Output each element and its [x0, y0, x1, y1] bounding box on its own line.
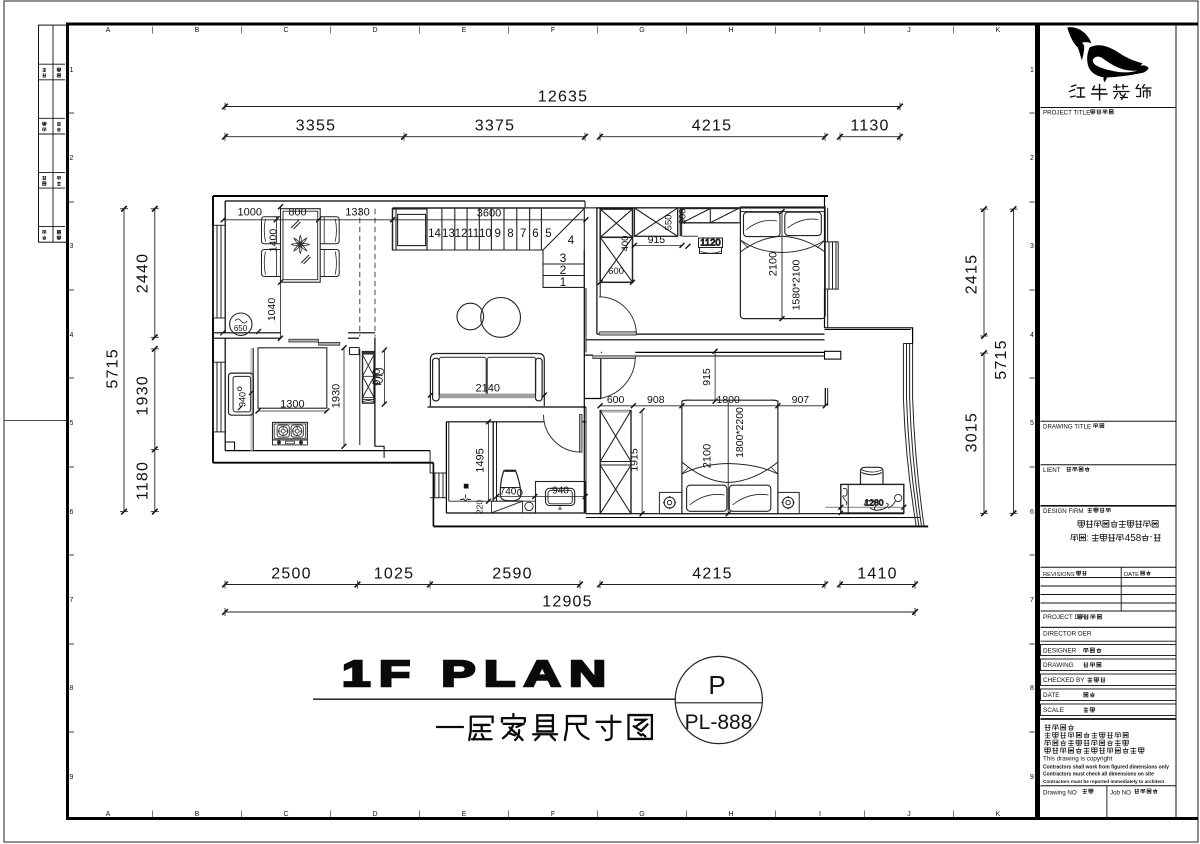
svg-text:2140: 2140: [476, 383, 500, 395]
svg-text:|: |: [241, 811, 243, 818]
svg-text:A: A: [106, 811, 111, 818]
svg-text:D: D: [372, 811, 377, 818]
svg-text:2500: 2500: [271, 566, 311, 583]
svg-text:400: 400: [620, 236, 631, 252]
svg-text:1130: 1130: [850, 118, 889, 135]
svg-text:6: 6: [70, 509, 74, 516]
svg-text:DRAWING TITLE: DRAWING TITLE: [1043, 423, 1091, 430]
svg-text:740: 740: [500, 487, 517, 498]
svg-text:2: 2: [1030, 155, 1034, 162]
svg-text:8: 8: [507, 228, 513, 240]
svg-text:P: P: [708, 670, 725, 700]
svg-text:7: 7: [70, 597, 74, 604]
svg-text:|: |: [686, 27, 688, 34]
svg-text:1580*2100: 1580*2100: [791, 259, 803, 310]
svg-text:2: 2: [70, 155, 74, 162]
svg-text:1120: 1120: [700, 237, 720, 248]
svg-text:This drawing is copyright: This drawing is copyright: [1043, 755, 1113, 762]
svg-text:12635: 12635: [538, 89, 589, 106]
svg-text:1: 1: [70, 67, 74, 74]
svg-text:7: 7: [520, 228, 526, 240]
svg-text:C: C: [283, 811, 288, 818]
svg-text:DIRECTOR DER: DIRECTOR DER: [1043, 631, 1092, 638]
svg-text:907: 907: [792, 394, 810, 406]
svg-text:|: |: [775, 27, 777, 34]
svg-text:8: 8: [1030, 685, 1034, 692]
svg-text:940: 940: [552, 486, 569, 497]
svg-text:9: 9: [70, 774, 74, 781]
svg-text:G: G: [639, 27, 644, 34]
svg-text:1F PLAN: 1F PLAN: [342, 654, 615, 694]
svg-text:|: |: [686, 811, 688, 818]
svg-text:12905: 12905: [542, 594, 593, 611]
svg-text:1330: 1330: [345, 207, 369, 219]
svg-text:300: 300: [678, 209, 689, 225]
svg-text:Job NO: Job NO: [1110, 789, 1131, 796]
svg-text:E: E: [462, 811, 467, 818]
svg-text:650: 650: [234, 324, 248, 333]
svg-text:E: E: [462, 27, 467, 34]
svg-text:600: 600: [607, 394, 625, 406]
svg-text:3355: 3355: [296, 118, 336, 135]
svg-text:J: J: [907, 27, 911, 34]
svg-text:|: |: [864, 27, 866, 34]
svg-text:Contractors must check all dim: Contractors must check all dimensions on…: [1043, 772, 1154, 778]
svg-text:2415: 2415: [964, 254, 981, 294]
svg-text:F: F: [551, 811, 555, 818]
svg-text:1800*2200: 1800*2200: [734, 407, 746, 458]
svg-text:220: 220: [475, 500, 485, 514]
svg-text:|: |: [953, 811, 955, 818]
svg-text:I: I: [819, 811, 821, 818]
svg-text:1930: 1930: [135, 375, 152, 415]
svg-text:1915: 1915: [629, 448, 641, 472]
svg-text:LIENT: LIENT: [1043, 467, 1061, 474]
svg-text:5: 5: [1030, 420, 1034, 427]
svg-text:3: 3: [70, 243, 74, 250]
svg-text::: :: [1087, 533, 1090, 543]
svg-text:|: |: [597, 27, 599, 34]
svg-text:915: 915: [648, 234, 666, 246]
svg-text:K: K: [996, 27, 1001, 34]
svg-text:2440: 2440: [135, 253, 152, 293]
svg-text:2100: 2100: [702, 444, 714, 468]
svg-text:11: 11: [467, 228, 479, 240]
svg-text:DESIGNER: DESIGNER: [1043, 648, 1077, 655]
svg-text:6: 6: [532, 228, 538, 240]
svg-text:A: A: [106, 27, 111, 34]
svg-text:H: H: [728, 811, 733, 818]
svg-text:PL-888: PL-888: [685, 711, 753, 734]
svg-text:|: |: [508, 811, 510, 818]
svg-text:1300: 1300: [280, 399, 304, 411]
svg-text:B: B: [195, 27, 200, 34]
svg-text:|: |: [330, 27, 332, 34]
svg-text:600: 600: [608, 266, 624, 277]
svg-text:|: |: [419, 27, 421, 34]
svg-text:9: 9: [494, 228, 500, 240]
svg-text:|: |: [597, 811, 599, 818]
svg-text:H: H: [728, 27, 733, 34]
svg-text:1495: 1495: [475, 448, 487, 472]
svg-text:8: 8: [70, 685, 74, 692]
svg-text:-: -: [1150, 532, 1153, 542]
svg-text:3600: 3600: [477, 208, 501, 220]
svg-text:6: 6: [1030, 509, 1034, 516]
svg-text:|: |: [419, 811, 421, 818]
svg-text:4: 4: [568, 235, 575, 247]
svg-text:|: |: [152, 27, 154, 34]
svg-text:F: F: [551, 27, 555, 34]
svg-text:9: 9: [1030, 774, 1034, 781]
svg-text:5: 5: [70, 420, 74, 427]
svg-text:12: 12: [455, 228, 468, 240]
svg-text:DATE: DATE: [1124, 572, 1139, 578]
svg-text:550: 550: [664, 215, 675, 231]
svg-text:5715: 5715: [993, 339, 1010, 379]
svg-text:|: |: [953, 27, 955, 34]
svg-text:2100: 2100: [768, 252, 780, 276]
svg-text:7: 7: [1030, 597, 1034, 604]
svg-text:5: 5: [545, 228, 551, 240]
svg-text:1025: 1025: [374, 566, 414, 583]
svg-text:5715: 5715: [105, 348, 122, 388]
svg-text:DESIGN FIRM: DESIGN FIRM: [1043, 508, 1084, 515]
svg-text:REVISIONS: REVISIONS: [1043, 572, 1075, 578]
svg-text:1400: 1400: [268, 229, 280, 253]
svg-text:Contractors shall work from fi: Contractors shall work from figured dime…: [1043, 764, 1169, 770]
svg-text:1: 1: [1030, 67, 1034, 74]
svg-text:DATE: DATE: [1043, 692, 1060, 699]
svg-text:10: 10: [479, 228, 492, 240]
svg-text:PROJECT TITLE: PROJECT TITLE: [1043, 110, 1090, 117]
svg-text:I: I: [819, 27, 821, 34]
svg-text:4215: 4215: [692, 118, 732, 135]
svg-text:1000: 1000: [238, 207, 262, 219]
svg-text:|: |: [241, 27, 243, 34]
svg-text:J: J: [907, 811, 911, 818]
svg-text:K: K: [996, 811, 1001, 818]
svg-text:1280: 1280: [865, 498, 884, 508]
svg-text:1: 1: [560, 275, 567, 289]
svg-text:915: 915: [701, 368, 713, 386]
svg-text:SCALE: SCALE: [1043, 707, 1064, 714]
svg-text:|: |: [330, 811, 332, 818]
svg-text:1930: 1930: [331, 384, 343, 408]
svg-text:13: 13: [442, 228, 455, 240]
svg-text:3375: 3375: [475, 118, 515, 135]
svg-text:DRAWING: DRAWING: [1043, 662, 1074, 669]
svg-text:1410: 1410: [857, 566, 897, 583]
svg-text:D: D: [372, 27, 377, 34]
svg-text:B: B: [195, 811, 200, 818]
svg-text:3: 3: [1030, 243, 1034, 250]
svg-text:940: 940: [238, 392, 248, 407]
svg-text:458: 458: [1125, 533, 1142, 544]
svg-text:4: 4: [1030, 332, 1034, 339]
svg-text:4215: 4215: [692, 566, 732, 583]
svg-text:Contractors must be reported i: Contractors must be reported immediately…: [1043, 779, 1165, 784]
svg-text:1040: 1040: [266, 298, 278, 322]
svg-text:CHECKED BY: CHECKED BY: [1043, 677, 1085, 684]
svg-text:|: |: [508, 27, 510, 34]
svg-text:1180: 1180: [135, 461, 152, 500]
svg-text:|: |: [775, 811, 777, 818]
svg-text:C: C: [283, 27, 288, 34]
svg-text:|: |: [152, 811, 154, 818]
svg-text:4: 4: [70, 332, 74, 339]
svg-text:|: |: [864, 811, 866, 818]
svg-text:3015: 3015: [964, 412, 981, 452]
svg-text:970: 970: [372, 368, 383, 385]
svg-text:2590: 2590: [492, 566, 532, 583]
svg-text:908: 908: [647, 394, 665, 406]
svg-text:G: G: [639, 811, 644, 818]
svg-text:14: 14: [428, 228, 441, 240]
svg-text:Drawing NO: Drawing NO: [1043, 789, 1077, 796]
